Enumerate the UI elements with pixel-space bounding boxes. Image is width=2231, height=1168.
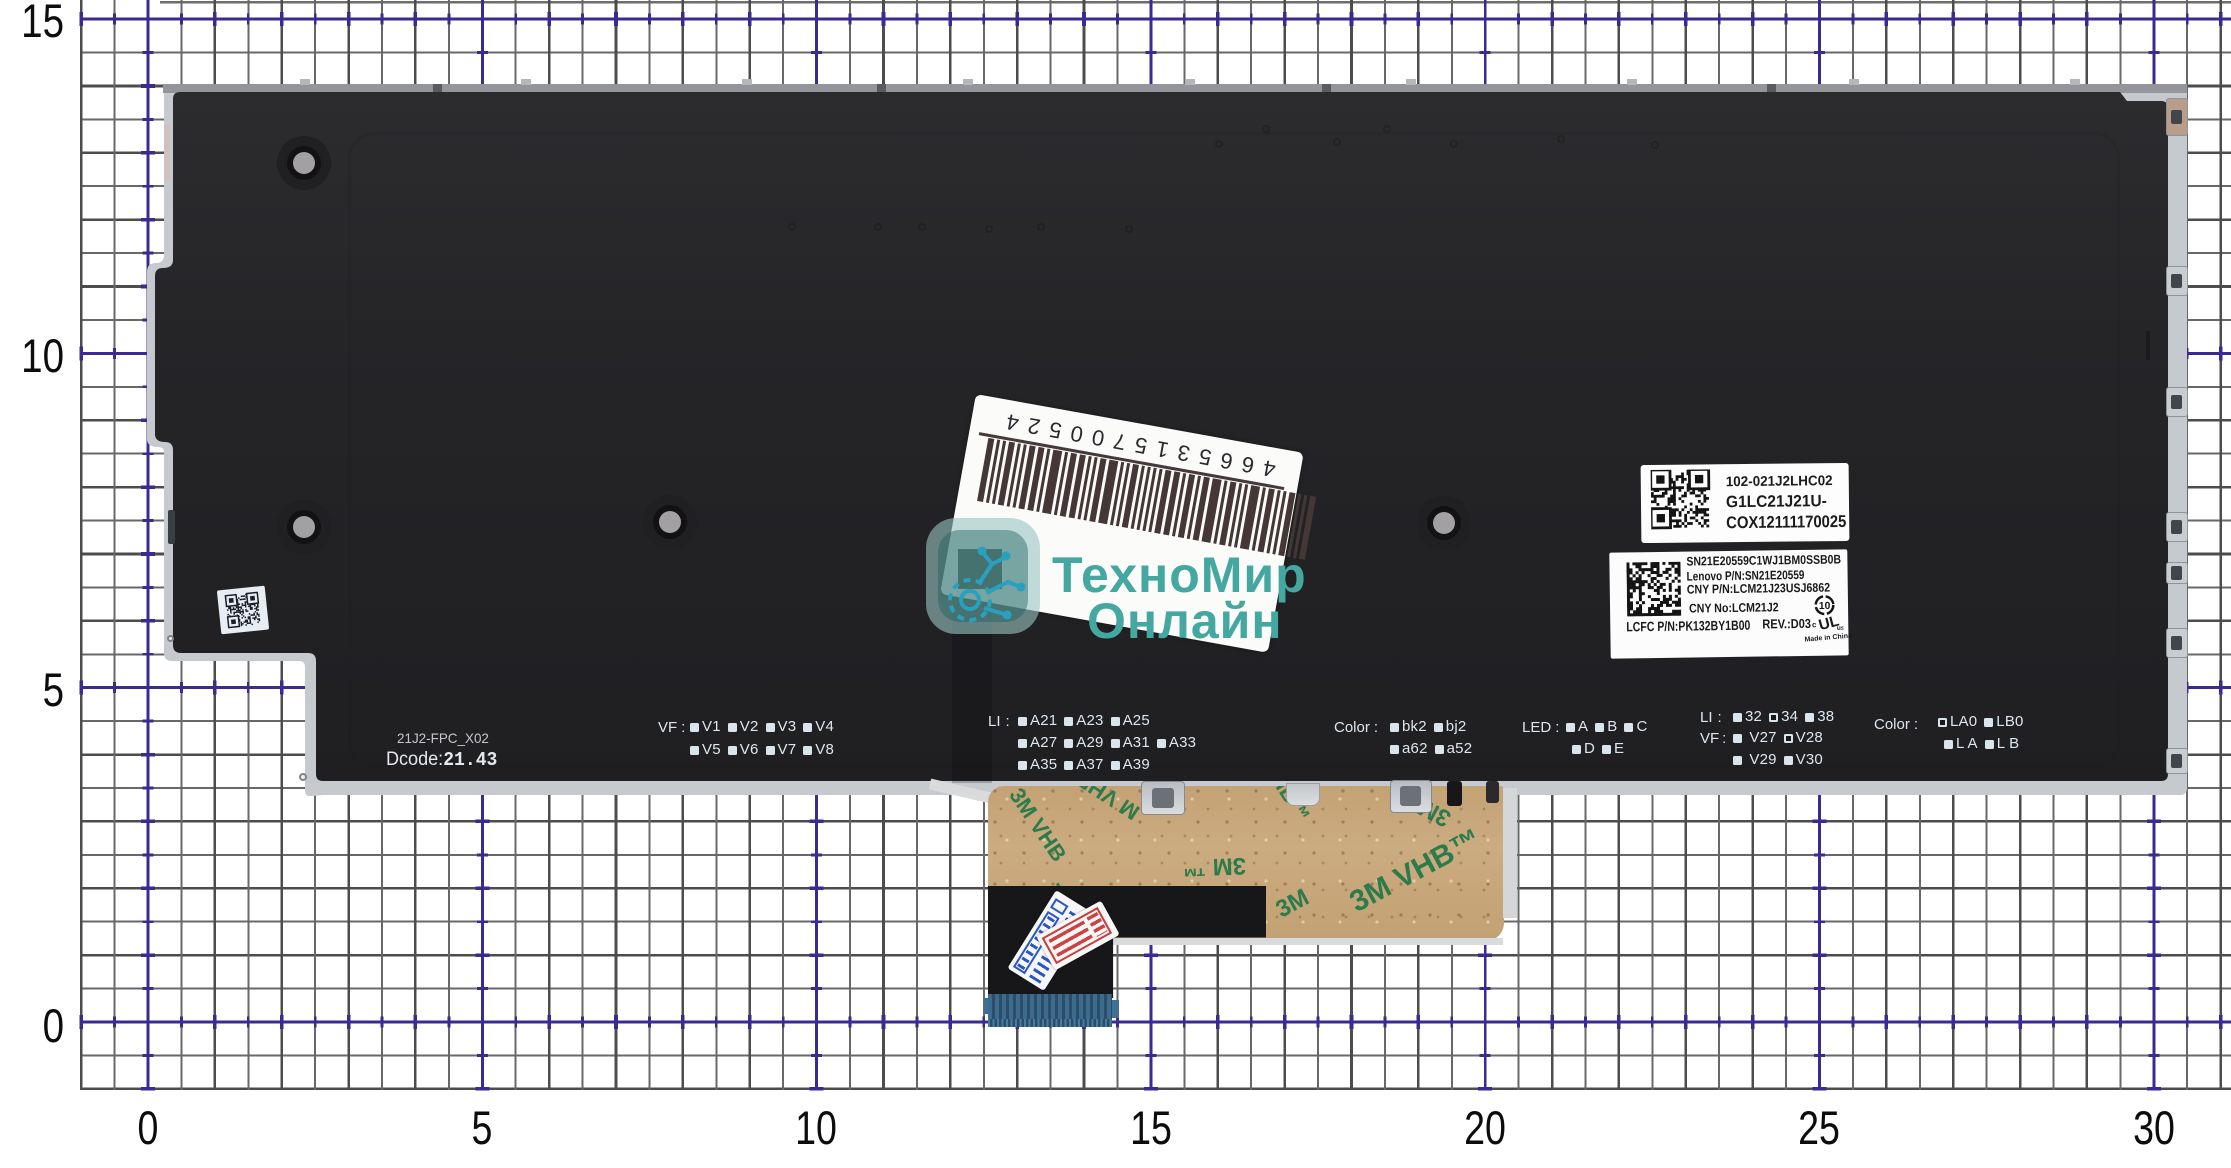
- svg-text:c: c: [1812, 620, 1817, 629]
- svg-text:us: us: [1837, 625, 1844, 632]
